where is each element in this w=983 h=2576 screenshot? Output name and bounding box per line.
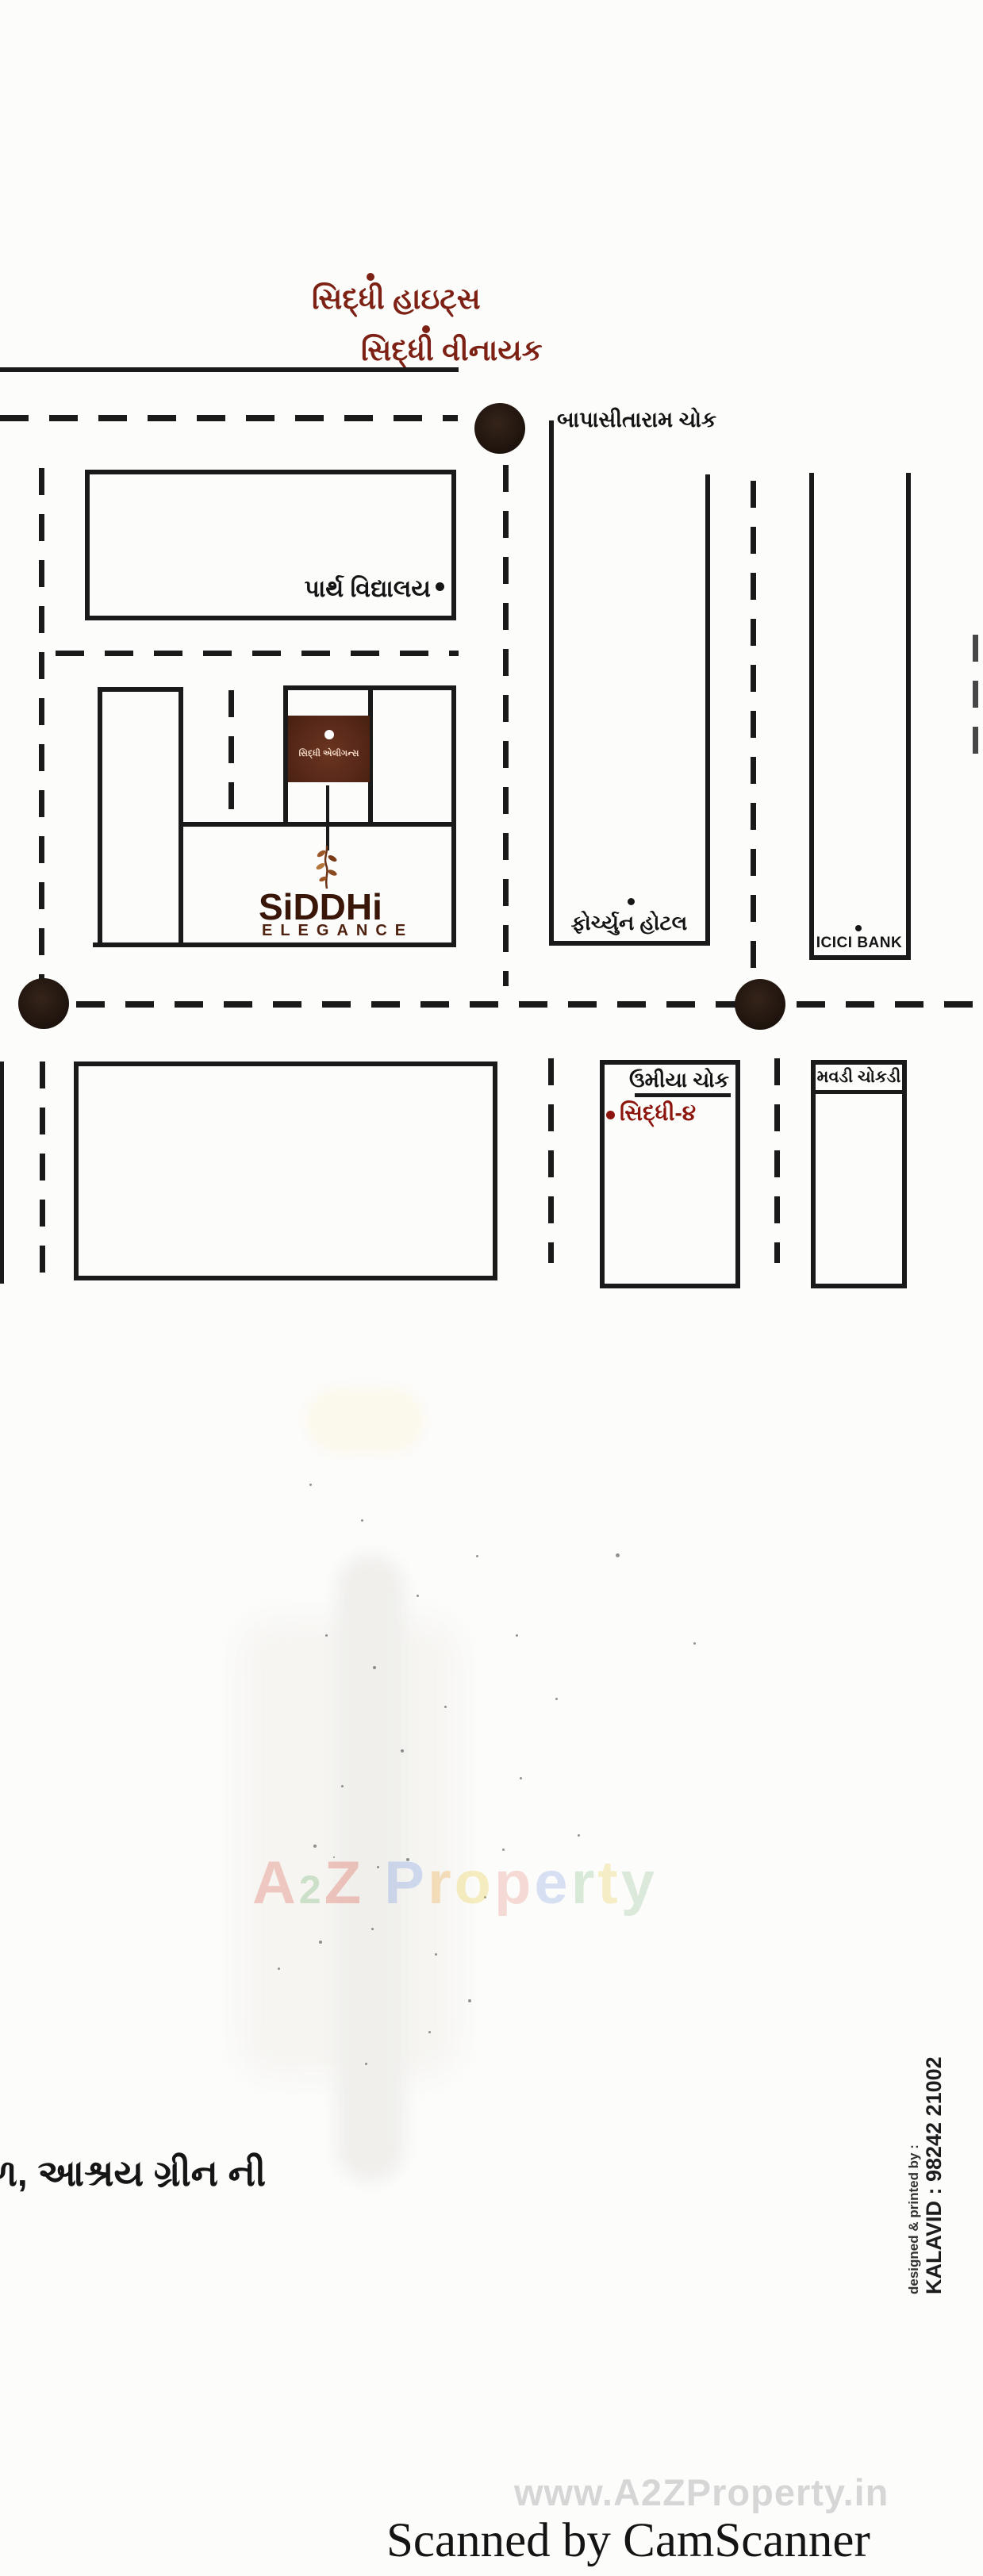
- scan-speckle: [319, 1941, 322, 1944]
- bottom-left-road-dashes: [40, 1061, 45, 1282]
- scan-speckle: [373, 1666, 376, 1669]
- parth-vidyalay-label: પાર્થ વિદ્યાલય: [304, 576, 431, 603]
- road-center-right-1: [503, 465, 509, 986]
- fortune-hotel-right-edge: [705, 474, 710, 946]
- a2z-property-watermark: A2Z Property: [252, 1849, 658, 1918]
- road-center-right-2: [751, 481, 756, 979]
- bapasitaram-chowk-dot: [474, 403, 525, 454]
- watermark-letter: r: [571, 1849, 598, 1917]
- icici-bottom-edge: [809, 955, 911, 960]
- road-top-edge: [0, 367, 459, 372]
- page-subtitle: સિદ્ધી વીનાયક: [361, 334, 543, 368]
- scan-speckle: [616, 1553, 620, 1557]
- middle-road-centerline-right: [797, 1001, 977, 1008]
- siddhi4-label: સિદ્ધી-૪: [620, 1100, 696, 1127]
- site-plot-box: સિદ્ધી એલીગન્સ: [288, 716, 370, 782]
- footer-note-text: ળ, આશ્રય ગ્રીન ની: [0, 2152, 266, 2196]
- mavdi-header-underline: [811, 1090, 907, 1094]
- scan-speckle: [444, 1706, 447, 1708]
- watermark-letter: A: [252, 1849, 299, 1917]
- watermark-letter: Z: [324, 1849, 364, 1917]
- icici-bank-label: ICICI BANK: [811, 935, 908, 952]
- printer-credit-line2: KALAVID : 98242 21002: [922, 2056, 947, 2294]
- watermark-letter: o: [455, 1849, 494, 1917]
- scan-speckle: [325, 1634, 328, 1637]
- watermark-letter: p: [494, 1849, 534, 1917]
- scanned-map-page: સિદ્ધી હાઇટ્સ સિદ્ધી વીનાયક બાપાસીતારામ …: [0, 0, 983, 2576]
- watermark-letter: 2: [299, 1868, 324, 1912]
- road-top-centerline: [0, 415, 458, 421]
- page-title: સિદ્ધી હાઇટ્સ: [312, 282, 481, 317]
- parth-vidyalay-block: પાર્થ વિદ્યાલય: [85, 470, 456, 620]
- icici-right-edge: [906, 473, 911, 960]
- umiya-chowk-label: ઉમીયા ચોક: [629, 1068, 729, 1093]
- siddhi-logo-subtext: ELEGANCE: [262, 922, 413, 940]
- printer-credits: designed & printed by : KALAVID : 98242 …: [906, 2056, 947, 2294]
- scan-speckle: [365, 2063, 367, 2065]
- scan-speckle: [401, 1749, 404, 1753]
- left-building-block: [98, 687, 183, 947]
- middle-road-centerline-left: [76, 1001, 739, 1008]
- road-left-centerline: [39, 468, 44, 985]
- title-marker-dot: [422, 325, 430, 333]
- site-pointer-line: [326, 785, 329, 850]
- site-plot-dot: [324, 730, 334, 739]
- scan-speckle: [693, 1642, 696, 1645]
- icici-marker-dot: [855, 925, 862, 931]
- scan-cream-blob: [305, 1387, 424, 1454]
- umiya-chowk-dot: [735, 979, 785, 1030]
- scan-speckle: [435, 1953, 437, 1956]
- fortune-hotel-marker-dot: [628, 898, 635, 905]
- bottom-road-dashes-2: [774, 1058, 780, 1263]
- icici-left-edge: [809, 473, 814, 960]
- scan-speckle: [313, 1845, 317, 1848]
- fortune-hotel-label: ફોર્ચ્યુન હોટલ: [554, 911, 705, 936]
- mavdi-chokdi-block: મવડી ચોકડી: [811, 1060, 907, 1288]
- camscanner-caption: Scanned by CamScanner: [386, 2513, 870, 2569]
- scan-speckle: [361, 1519, 363, 1522]
- scan-speckle: [520, 1777, 522, 1779]
- bapasitaram-chowk-label: બાપાસીતારામ ચોક: [557, 408, 716, 433]
- mavdi-chokdi-label: મવડી ચોકડી: [816, 1068, 902, 1087]
- scan-speckle: [428, 2031, 431, 2033]
- watermark-letter: [364, 1849, 384, 1917]
- printer-credit-line1: designed & printed by :: [906, 2056, 922, 2294]
- scan-speckle: [371, 1928, 374, 1930]
- lane-dashed-line: [56, 651, 459, 656]
- site-lane-dashes: [228, 690, 234, 817]
- fortune-hotel-left-edge: [549, 420, 554, 946]
- scan-speckle: [555, 1698, 558, 1700]
- watermark-letter: P: [384, 1849, 428, 1917]
- watermark-letter: y: [621, 1849, 658, 1917]
- title-marker-dot: [367, 273, 374, 281]
- umiya-header-underline: [635, 1093, 731, 1097]
- scan-speckle: [417, 1595, 419, 1597]
- site-plot-label: સિદ્ધી એલીગન્સ: [288, 749, 370, 759]
- siddhi4-bullet-dot: [606, 1111, 615, 1119]
- scan-speckle: [516, 1634, 518, 1637]
- siddhi-leaf-emblem-icon: [309, 843, 345, 892]
- watermark-letter: r: [428, 1849, 455, 1917]
- a2zproperty-url-watermark: www.A2ZProperty.in: [514, 2470, 889, 2514]
- scan-speckle: [468, 1999, 471, 2002]
- bottom-road-dashes-1: [548, 1058, 554, 1263]
- bottom-left-block: [74, 1061, 497, 1280]
- bottom-left-edge-line: [0, 1061, 4, 1284]
- parth-vidyalay-marker-dot: [436, 582, 444, 591]
- scan-speckle: [476, 1555, 478, 1557]
- road-page-edge-dashes: [973, 635, 978, 754]
- scan-speckle: [578, 1834, 580, 1837]
- scan-speckle: [278, 1968, 280, 1970]
- site-mid-edge: [179, 822, 456, 827]
- site-bottom-edge: [93, 942, 456, 947]
- fortune-hotel-bottom-edge: [549, 941, 710, 946]
- watermark-letter: e: [534, 1849, 570, 1917]
- scan-speckle: [341, 1785, 344, 1787]
- site-right-edge: [451, 685, 456, 947]
- left-chowk-dot: [18, 978, 69, 1029]
- watermark-letter: t: [597, 1849, 620, 1917]
- scan-speckle: [309, 1484, 312, 1486]
